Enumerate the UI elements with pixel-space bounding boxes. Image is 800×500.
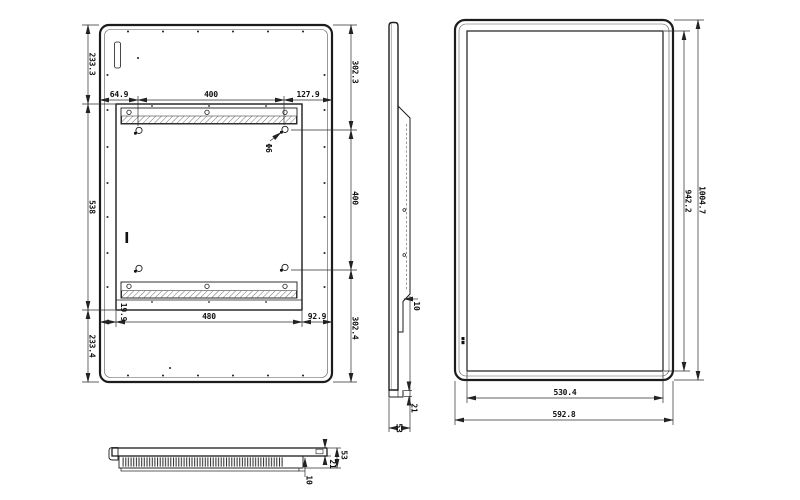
cad-drawing-screenshot: 233.3 538 233.4 64.9 400 127.9 302.3 400…	[0, 0, 800, 500]
side-back-box	[398, 106, 410, 332]
bottom-mounting-rail	[121, 282, 297, 298]
bezel-sensor-mark	[462, 337, 465, 344]
dim-back-right-bottom: 302.4	[351, 316, 360, 339]
dim-back-top-middle: 400	[204, 90, 218, 99]
back-view-dimension-labels: 233.3 538 233.4 64.9 400 127.9 302.3 400…	[88, 52, 360, 357]
front-view: 942.2 1004.7 530.4 592.8	[455, 20, 707, 425]
bottom-view: 21 53 10	[109, 441, 349, 485]
top-mounting-rail	[121, 108, 297, 124]
side-plate-hole	[403, 254, 406, 257]
bottom-right-notch	[316, 449, 323, 454]
dim-back-right-middle: 400	[351, 191, 360, 205]
dim-back-bottom-middle: 480	[202, 312, 216, 321]
front-view-dimension-lines	[455, 20, 704, 425]
dim-front-total-width: 592.8	[552, 410, 575, 419]
dim-front-screen-height: 942.2	[684, 189, 693, 212]
front-bezel-outline	[455, 20, 673, 380]
screen-area	[467, 31, 663, 371]
dim-back-left-middle: 538	[88, 200, 97, 214]
front-view-dimension-labels: 942.2 1004.7 530.4 592.8	[552, 186, 706, 419]
back-view-dimension-lines	[82, 25, 357, 382]
screw-dots	[106, 30, 325, 376]
cable-slot	[126, 232, 129, 243]
dim-side-step-depth: 10	[412, 301, 421, 311]
bottom-front-bar	[112, 448, 327, 456]
back-handle-slot	[115, 42, 121, 68]
dim-bottom-total-thickness: 53	[340, 450, 349, 460]
back-cover-inner-line	[105, 30, 328, 378]
side-view: 10 21 53	[389, 23, 421, 433]
front-bezel-inner-line	[459, 24, 669, 376]
dim-front-screen-width: 530.4	[553, 388, 576, 397]
back-view: 233.3 538 233.4 64.9 400 127.9 302.3 400…	[82, 25, 360, 382]
dim-back-left-bottom: 233.4	[88, 334, 97, 357]
bottom-lower-ledge	[121, 468, 299, 471]
side-bottom-foot	[389, 390, 403, 397]
vent-slats	[122, 457, 283, 466]
dim-back-top-left: 64.9	[110, 90, 129, 99]
dim-back-right-top: 302.3	[351, 60, 360, 83]
technical-drawing-canvas: 233.3 538 233.4 64.9 400 127.9 302.3 400…	[0, 0, 800, 500]
bottom-left-cap	[109, 448, 118, 460]
dim-back-bottom-left: 19.9	[119, 303, 128, 322]
back-cover-outline	[100, 25, 332, 382]
side-profile-body	[389, 23, 398, 391]
dim-back-top-right: 127.9	[296, 90, 319, 99]
vesa-mounting-plate	[116, 104, 302, 310]
dim-back-bottom-right: 92.9	[308, 312, 327, 321]
dim-back-left-top: 233.3	[88, 52, 97, 75]
dim-front-total-height: 1004.7	[698, 186, 707, 214]
dim-bottom-front-thickness: 21	[328, 459, 337, 469]
dim-side-front-thickness: 21	[410, 403, 419, 413]
dim-bottom-vent-depth: 10	[305, 475, 314, 485]
keyhole-diameter-label: Φ6	[264, 143, 273, 153]
side-plate-hole	[403, 209, 406, 212]
dim-side-total-thickness: 53	[395, 423, 404, 433]
